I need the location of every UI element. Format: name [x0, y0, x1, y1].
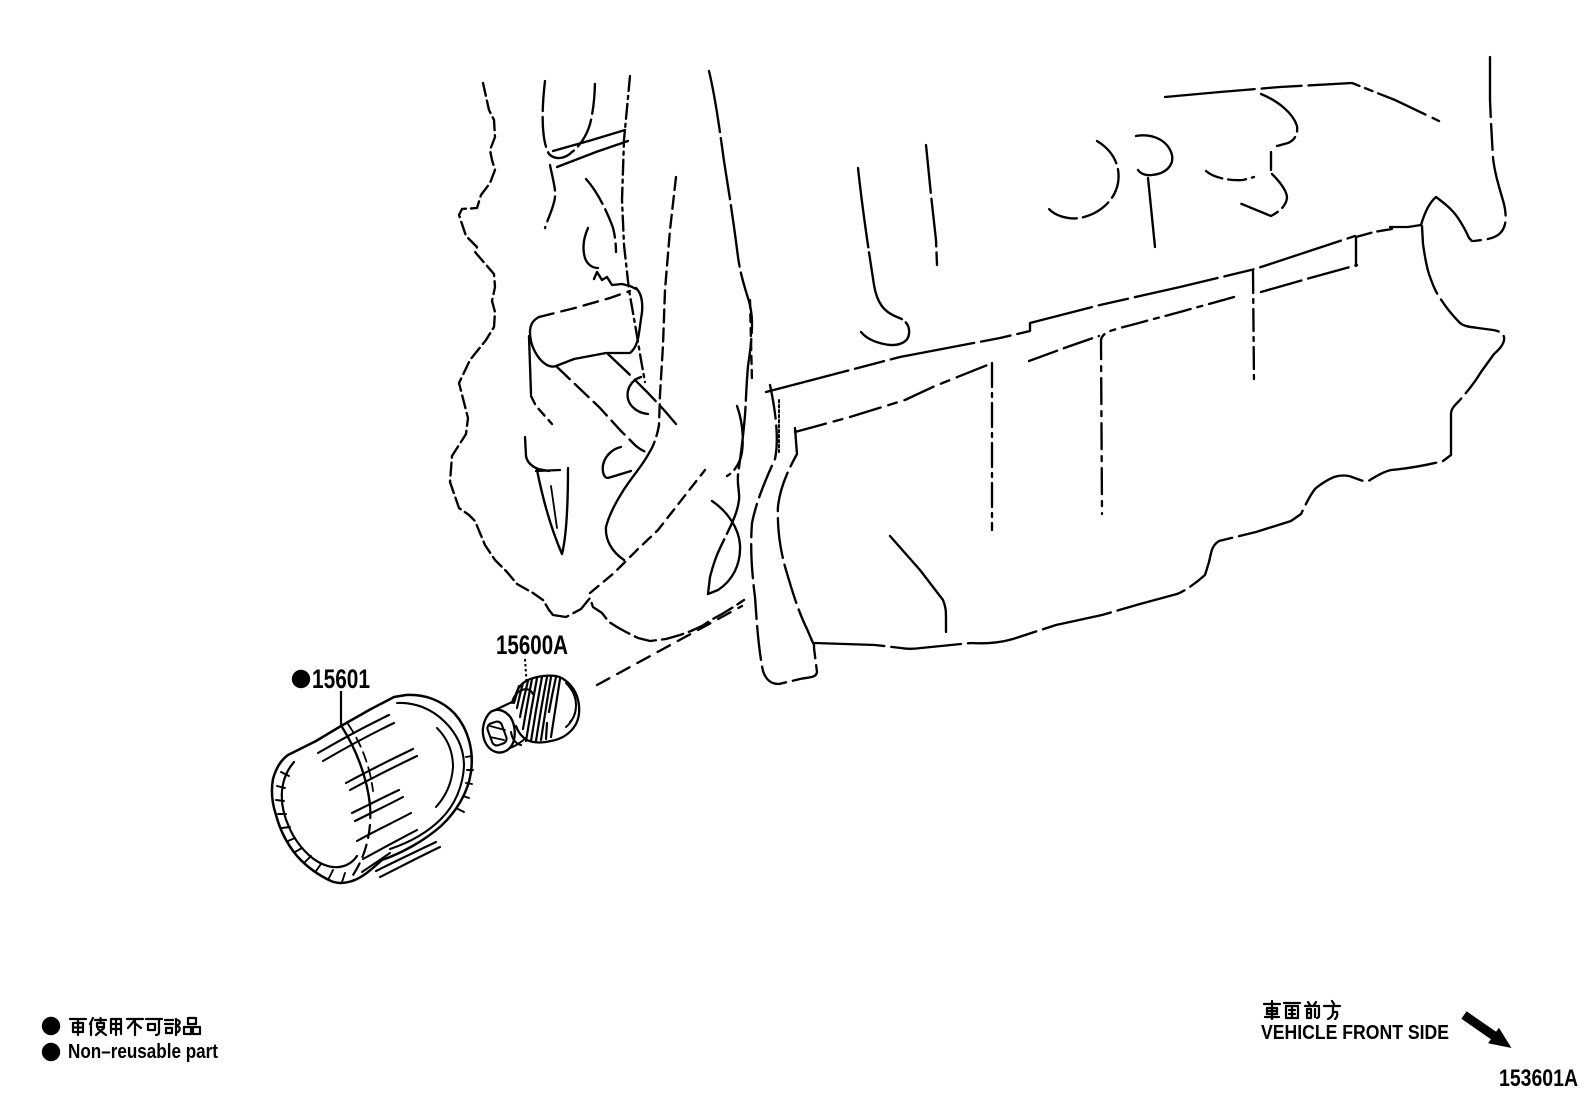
svg-text:153601A: 153601A: [1499, 1065, 1578, 1092]
svg-text:VEHICLE FRONT SIDE: VEHICLE FRONT SIDE: [1261, 1022, 1449, 1044]
svg-text:15600A: 15600A: [496, 630, 568, 660]
svg-text:15601: 15601: [312, 664, 370, 694]
svg-text:Non–reusable part: Non–reusable part: [68, 1041, 218, 1063]
